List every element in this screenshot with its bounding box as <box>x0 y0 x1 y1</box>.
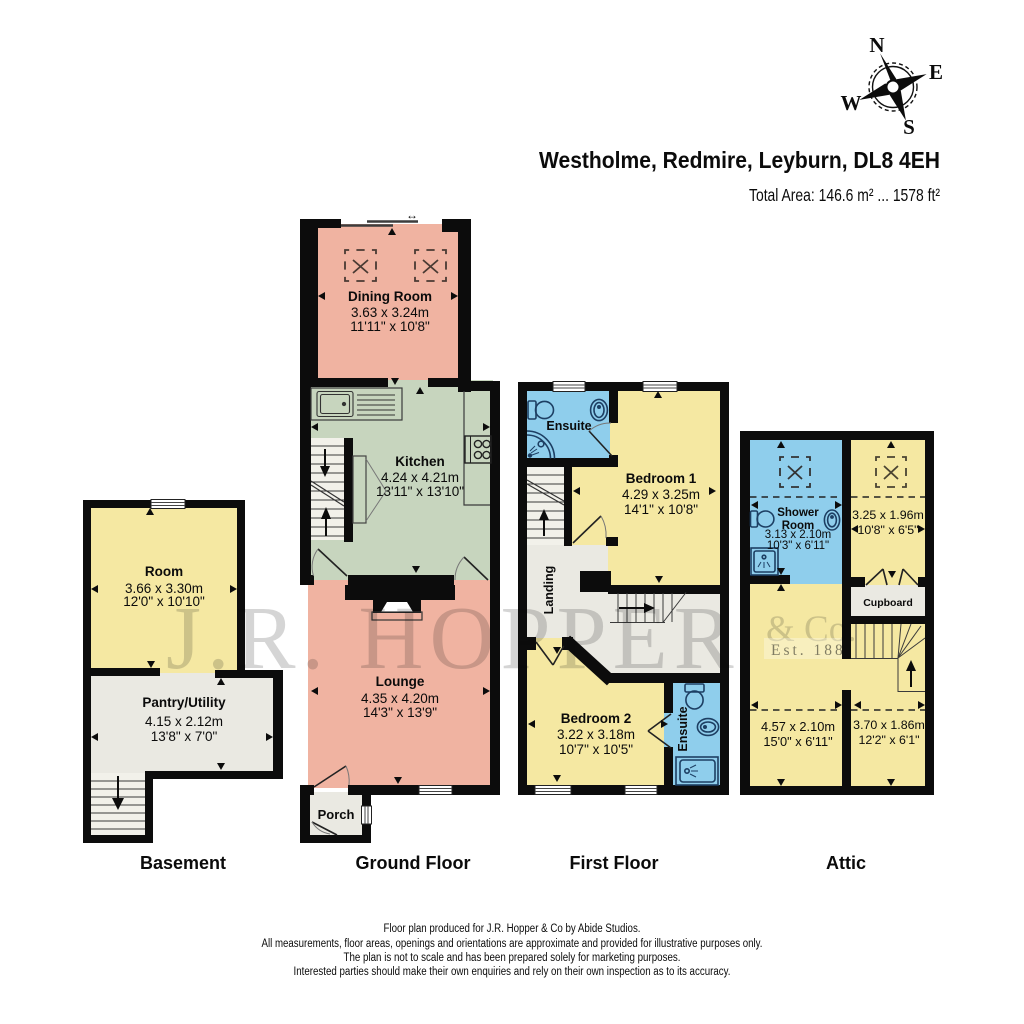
svg-text:Shower: Shower <box>777 507 819 519</box>
svg-text:Est. 188: Est. 188 <box>771 642 846 659</box>
svg-text:Bedroom 1: Bedroom 1 <box>626 471 697 486</box>
svg-text:Cupboard: Cupboard <box>863 597 913 609</box>
svg-text:3.63 x 3.24m: 3.63 x 3.24m <box>351 305 429 320</box>
svg-text:13'8" x 7'0": 13'8" x 7'0" <box>151 729 218 744</box>
svg-text:Interested parties should make: Interested parties should make their own… <box>294 966 731 978</box>
svg-text:Ensuite: Ensuite <box>546 419 591 433</box>
svg-text:Room: Room <box>145 564 183 579</box>
svg-text:Westholme, Redmire, Leyburn, D: Westholme, Redmire, Leyburn, DL8 4EH <box>539 147 940 173</box>
svg-text:11'11" x 10'8": 11'11" x 10'8" <box>350 319 430 334</box>
svg-text:3.70 x 1.86m: 3.70 x 1.86m <box>853 718 925 732</box>
svg-text:Ensuite: Ensuite <box>676 706 690 751</box>
svg-text:Total Area: 146.6 m² ... 1578: Total Area: 146.6 m² ... 1578 ft² <box>749 185 940 205</box>
svg-text:Ground Floor: Ground Floor <box>356 853 471 873</box>
svg-text:N: N <box>869 33 884 57</box>
svg-text:4.24 x 4.21m: 4.24 x 4.21m <box>381 470 459 485</box>
svg-text:15'0" x 6'11": 15'0" x 6'11" <box>763 734 832 749</box>
svg-text:4.35 x 4.20m: 4.35 x 4.20m <box>361 691 439 706</box>
svg-text:Floor plan produced for J.R. H: Floor plan produced for J.R. Hopper & Co… <box>384 923 641 935</box>
svg-text:J.R. HOPPER: J.R. HOPPER <box>166 589 740 688</box>
svg-text:Attic: Attic <box>826 853 866 873</box>
svg-text:3.25 x 1.96m: 3.25 x 1.96m <box>852 508 924 522</box>
svg-text:14'1" x 10'8": 14'1" x 10'8" <box>624 502 698 517</box>
svg-text:Pantry/Utility: Pantry/Utility <box>142 695 226 710</box>
svg-text:10'3" x 6'11": 10'3" x 6'11" <box>767 540 829 552</box>
svg-text:Porch: Porch <box>318 807 355 822</box>
svg-text:4.15 x 2.12m: 4.15 x 2.12m <box>145 714 223 729</box>
svg-text:Basement: Basement <box>140 853 226 873</box>
svg-text:The plan is not to scale and h: The plan is not to scale and has been pr… <box>344 952 681 964</box>
svg-text:Dining Room: Dining Room <box>348 289 432 304</box>
svg-text:10'7" x 10'5": 10'7" x 10'5" <box>559 742 633 757</box>
svg-text:S: S <box>903 115 915 139</box>
svg-text:13'11" x 13'10": 13'11" x 13'10" <box>376 484 464 499</box>
svg-text:10'8" x 6'5": 10'8" x 6'5" <box>857 523 918 537</box>
svg-text:All measurements, floor areas,: All measurements, floor areas, openings … <box>262 938 763 950</box>
svg-text:First Floor: First Floor <box>570 853 659 873</box>
svg-text:W: W <box>841 91 862 115</box>
svg-text:4.57 x 2.10m: 4.57 x 2.10m <box>761 719 835 734</box>
svg-text:12'2" x 6'1": 12'2" x 6'1" <box>858 733 919 747</box>
svg-text:3.22 x 3.18m: 3.22 x 3.18m <box>557 727 635 742</box>
svg-text:14'3" x 13'9": 14'3" x 13'9" <box>363 705 437 720</box>
svg-text:Kitchen: Kitchen <box>395 454 445 469</box>
svg-text:4.29 x 3.25m: 4.29 x 3.25m <box>622 487 700 502</box>
svg-text:↔: ↔ <box>406 208 418 222</box>
svg-text:Bedroom 2: Bedroom 2 <box>561 711 632 726</box>
svg-text:E: E <box>929 60 943 84</box>
